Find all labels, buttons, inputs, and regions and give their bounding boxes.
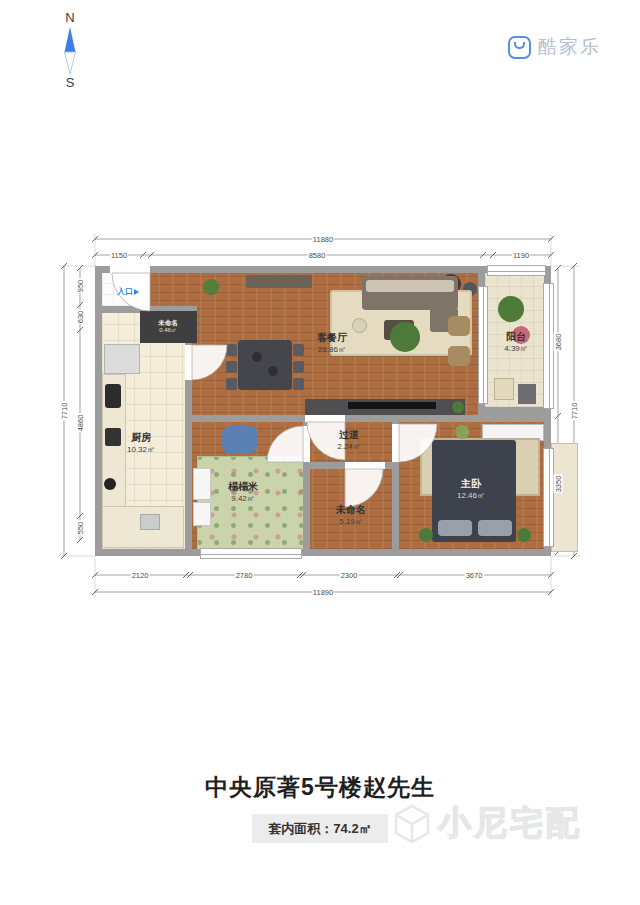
dim-left-seg-3: 4860 bbox=[76, 414, 85, 433]
window-tatami-bottom bbox=[200, 548, 302, 559]
dim-left-seg-2: 630 bbox=[76, 310, 85, 325]
door-gap-tatami bbox=[303, 426, 310, 462]
door-gap-kitchen bbox=[185, 345, 192, 380]
room-label-hallway: 过道 2.24㎡ bbox=[337, 429, 361, 452]
room-label-master-bedroom: 主卧 12.46㎡ bbox=[457, 478, 485, 501]
area-band: 套内面积：74.2㎡ bbox=[252, 814, 388, 843]
dim-right-total: 7710 bbox=[570, 402, 579, 421]
cooktop bbox=[105, 428, 121, 446]
entry-arrow-icon bbox=[134, 289, 139, 295]
dining-table bbox=[238, 340, 292, 390]
plan-title: 中央原著5号楼赵先生 bbox=[0, 772, 640, 803]
room-label-living-dining: 客餐厅 28.86㎡ bbox=[317, 332, 347, 355]
door-gap-unnamed bbox=[345, 462, 385, 469]
dim-left-seg-4: 550 bbox=[76, 521, 85, 536]
wall-balcony-stub-top bbox=[478, 266, 485, 286]
wall-living-divider-west bbox=[185, 415, 305, 422]
watermark-cube-icon bbox=[392, 803, 432, 845]
pillow-left bbox=[438, 520, 472, 536]
bassinet bbox=[222, 426, 258, 454]
tv-screen bbox=[348, 402, 436, 409]
table-decor-1 bbox=[252, 352, 262, 362]
tatami-rug bbox=[197, 456, 305, 551]
plant-coffee-table bbox=[390, 322, 420, 352]
kitchen-sink bbox=[105, 384, 121, 408]
sliding-door-balcony bbox=[478, 286, 488, 404]
door-gap-entry bbox=[110, 266, 150, 273]
floor-plan-page: N S 酷家乐 11880 1150 8580 1190 2120 2780 2… bbox=[0, 0, 640, 905]
dim-bottom-total: 11890 bbox=[312, 588, 334, 597]
plant-tv-console bbox=[452, 401, 464, 413]
dim-top-seg-1: 1150 bbox=[110, 251, 128, 260]
dim-top-seg-3: 1190 bbox=[512, 251, 530, 260]
plant-bedroom-top bbox=[455, 425, 469, 439]
dim-bottom-seg-4: 3670 bbox=[465, 571, 484, 580]
room-label-entry-closet: 未命名 0.46㎡ bbox=[158, 319, 178, 335]
door-gap-hallway bbox=[305, 415, 345, 422]
dim-left-total: 7710 bbox=[60, 402, 69, 421]
wall-left bbox=[95, 266, 102, 556]
sideboard bbox=[246, 275, 312, 288]
floor-lamp bbox=[352, 318, 367, 333]
balcony-cabinet bbox=[518, 384, 536, 404]
dining-chair-6 bbox=[293, 378, 304, 390]
pillow-right bbox=[478, 520, 512, 536]
kitchen-appliance bbox=[140, 514, 160, 530]
kitchen-trash-bin bbox=[104, 478, 116, 490]
watermark: 小尼宅配 bbox=[392, 801, 582, 846]
tatami-desk bbox=[193, 468, 211, 500]
dim-left-seg-1: 950 bbox=[76, 279, 85, 294]
wall-bottom bbox=[95, 549, 551, 556]
dim-top-total: 11880 bbox=[312, 235, 334, 244]
dim-top-seg-2: 8580 bbox=[308, 251, 327, 260]
plant-bed-right bbox=[517, 528, 531, 542]
window-bedroom-right bbox=[543, 448, 554, 547]
dim-bottom-seg-2: 2780 bbox=[235, 571, 254, 580]
dim-bottom-seg-1: 2120 bbox=[131, 571, 150, 580]
wall-kitchen-divider-lower bbox=[185, 380, 192, 549]
tatami-cabinet bbox=[193, 502, 211, 526]
entry-label-text: 入口 bbox=[117, 286, 133, 297]
area-label: 套内面积：74.2㎡ bbox=[268, 820, 371, 838]
bay-window-sill bbox=[551, 443, 578, 552]
sofa-cushions bbox=[366, 280, 454, 292]
armchair-2 bbox=[448, 346, 470, 366]
room-label-kitchen: 厨房 10.32㎡ bbox=[127, 432, 155, 455]
dining-chair-1 bbox=[226, 344, 237, 356]
dim-bottom-seg-3: 2300 bbox=[340, 571, 359, 580]
room-label-unnamed: 未命名 5.19㎡ bbox=[336, 504, 366, 527]
plant-balcony bbox=[498, 296, 524, 322]
dining-chair-3 bbox=[226, 378, 237, 390]
dining-chair-4 bbox=[293, 344, 304, 356]
watermark-text: 小尼宅配 bbox=[438, 801, 582, 846]
plant-bed-left bbox=[419, 528, 433, 542]
door-gap-bedroom bbox=[392, 424, 399, 462]
dining-chair-5 bbox=[293, 361, 304, 373]
armchair-1 bbox=[448, 316, 470, 336]
fridge bbox=[104, 344, 140, 374]
dim-right-seg-2: 3350 bbox=[554, 475, 563, 494]
window-balcony-top bbox=[487, 265, 546, 276]
dim-right-seg-1: 3680 bbox=[554, 333, 563, 352]
entry-label: 入口 bbox=[117, 286, 139, 297]
window-balcony-right bbox=[543, 283, 554, 409]
dining-chair-2 bbox=[226, 361, 237, 373]
room-label-balcony: 阳台 4.39㎡ bbox=[504, 331, 528, 354]
wall-balcony-bedroom bbox=[478, 407, 551, 422]
plant-living-left bbox=[203, 279, 219, 295]
balcony-stool bbox=[494, 378, 514, 400]
room-label-tatami: 榻榻米 9.42㎡ bbox=[228, 481, 258, 504]
table-decor-2 bbox=[268, 366, 278, 376]
